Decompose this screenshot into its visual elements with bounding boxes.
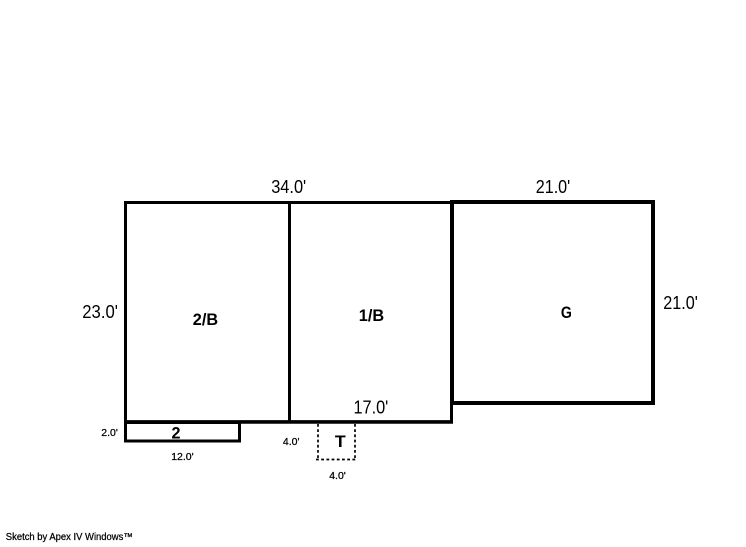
svg-text:21.0': 21.0' xyxy=(536,177,570,197)
svg-text:2: 2 xyxy=(172,424,181,443)
svg-text:4.0': 4.0' xyxy=(329,470,346,482)
svg-text:34.0': 34.0' xyxy=(271,177,306,197)
svg-text:23.0': 23.0' xyxy=(82,302,118,322)
svg-text:12.0': 12.0' xyxy=(171,451,193,463)
svg-text:T: T xyxy=(335,432,346,451)
svg-text:G: G xyxy=(561,303,572,322)
svg-text:1/B: 1/B xyxy=(359,306,384,325)
svg-text:4.0': 4.0' xyxy=(283,436,300,448)
svg-text:2.0': 2.0' xyxy=(101,427,118,439)
svg-text:2/B: 2/B xyxy=(193,310,218,329)
svg-text:21.0': 21.0' xyxy=(663,293,698,313)
svg-text:17.0': 17.0' xyxy=(354,398,389,418)
svg-text:Sketch by Apex IV Windows™: Sketch by Apex IV Windows™ xyxy=(6,532,133,543)
